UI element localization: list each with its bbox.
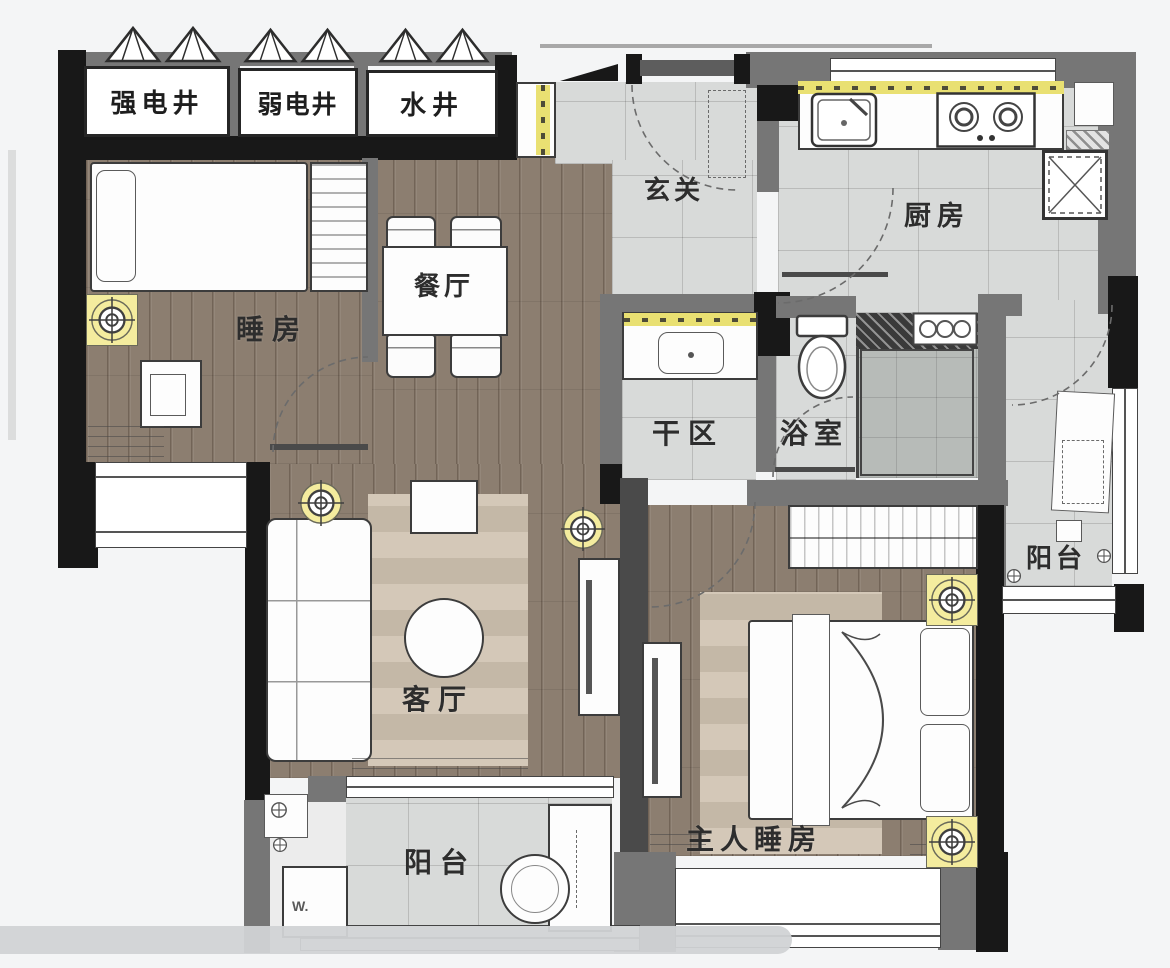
wall-balcony-south-stub (308, 776, 346, 802)
vent-icon (98, 24, 228, 64)
dining-chair (450, 334, 502, 378)
washing-machine-label: W. (292, 898, 308, 914)
wall-west-bedroom (58, 160, 86, 464)
vent-icon (370, 26, 498, 64)
laundry-cabinet-dash (576, 830, 578, 908)
wall-shaft-bottom (58, 134, 512, 160)
ceiling-light-icon (298, 480, 344, 526)
shower-control-icon (912, 312, 978, 346)
living-side-table (410, 480, 478, 534)
kitchen-sink-icon (810, 92, 878, 148)
floor-plan: 强电井 弱电井 水井 (0, 0, 1170, 968)
wall-master-east (976, 505, 1004, 877)
ceiling-light-icon (929, 577, 975, 623)
master-tv-panel (642, 642, 682, 798)
roof-edge-line (540, 44, 932, 48)
shaft-water: 水井 (366, 70, 498, 137)
wall-dry-west-cap (600, 464, 622, 504)
shower-enclosure (860, 349, 974, 476)
balcony-east-window (1112, 388, 1138, 574)
floor-drain-icon (1006, 568, 1022, 584)
entry-cabinet-strip (536, 85, 550, 155)
balcony-door-swing-arc (1012, 305, 1112, 405)
master-door-swing-arc (650, 502, 755, 607)
shaft-strong-electric: 强电井 (84, 66, 230, 137)
label-kitchen: 厨房 (904, 194, 970, 233)
shower-glass-partition (856, 347, 859, 478)
master-tv-screen (652, 658, 658, 784)
vent-icon (240, 26, 358, 64)
balcony-heater-dashed (1062, 440, 1104, 504)
master-bed-runner (792, 614, 830, 826)
wall-west-upper (58, 50, 86, 162)
laundry-basin-inner (511, 865, 559, 913)
floor-drain-icon (1096, 548, 1112, 564)
ceiling-light-icon (89, 297, 135, 343)
bedroom-rug-fringe (88, 420, 164, 462)
floor-drain-icon (270, 801, 288, 819)
kitchen-corner-box (1074, 82, 1114, 126)
shaft-weak-electric: 弱电井 (238, 68, 358, 137)
vanity-sink-drain (688, 352, 694, 358)
living-balcony-slider-window (346, 776, 614, 798)
label-dining-room: 餐厅 (414, 266, 474, 303)
label-balcony-south: 阳台 (404, 841, 476, 881)
bedroom-desk-chair (150, 374, 186, 416)
tv-screen (586, 580, 592, 694)
balcony-east-south-window (1002, 586, 1116, 614)
master-pillow (920, 628, 970, 716)
dining-chair (386, 334, 436, 378)
wall-master-south-corner (976, 852, 1008, 952)
sofa (266, 518, 372, 762)
fridge-icon (1042, 150, 1108, 220)
bedroom-pillow (96, 170, 136, 282)
label-balcony-east: 阳台 (1026, 538, 1086, 575)
bedroom-wardrobe (310, 162, 368, 292)
floor-drain-icon (272, 837, 288, 853)
label-bathroom: 浴室 (780, 412, 848, 452)
wall-west-bay (58, 462, 98, 568)
label-master-bedroom: 主人睡房 (686, 818, 822, 858)
wall-hall-kitchen-cap (757, 85, 799, 121)
bedroom-door-swing-arc (273, 357, 368, 452)
wall-dry-west (600, 294, 622, 472)
kitchen-wall-hatch (1066, 130, 1110, 150)
wall-wedge (560, 64, 618, 81)
label-bedroom: 睡房 (236, 308, 308, 348)
shaft-water-label: 水井 (400, 85, 464, 122)
label-living-room: 客厅 (402, 678, 474, 718)
coffee-table (404, 598, 484, 678)
master-wardrobe (788, 505, 978, 569)
shaft-weak-electric-label: 弱电井 (257, 85, 338, 121)
master-pillow (920, 724, 970, 812)
wall-balcony-east-cap-bottom (1114, 584, 1144, 632)
living-rug-fringe (352, 750, 528, 774)
entry-door-post-right (734, 54, 750, 84)
wall-master-north (747, 480, 1008, 506)
entry-door-panel (640, 60, 734, 76)
wall-balcony-east-cap-top (1108, 276, 1138, 388)
ceiling-light-icon (929, 819, 975, 865)
bay-window-west (95, 462, 247, 548)
stove-icon (936, 92, 1036, 148)
toilet-icon (794, 314, 850, 402)
background-artifact-bar (0, 926, 792, 954)
shaft-strong-electric-label: 强电井 (110, 83, 203, 120)
neighbor-wall-hint (8, 150, 16, 440)
tv-console (578, 558, 620, 716)
wall-shaft-end (495, 55, 517, 160)
vanity-mirror-strip (624, 313, 756, 326)
ceiling-light-icon (561, 507, 605, 551)
label-hallway: 玄关 (644, 170, 704, 207)
label-dry-area: 干区 (652, 412, 724, 452)
kitchen-door-swing-arc (778, 188, 893, 303)
wall-hall-south (612, 294, 758, 314)
